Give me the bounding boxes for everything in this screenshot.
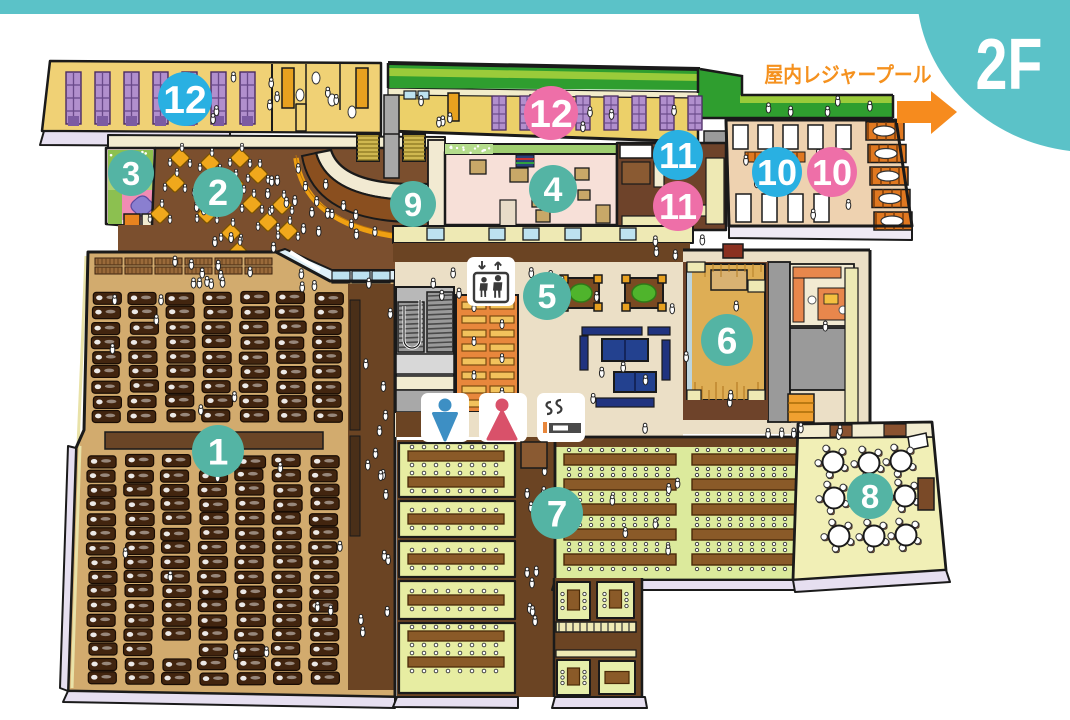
svg-text:屋内レジャープール: 屋内レジャープール [765, 63, 932, 87]
svg-text:6: 6 [717, 320, 738, 361]
svg-text:4: 4 [544, 171, 563, 209]
svg-text:2: 2 [208, 172, 228, 213]
svg-text:11: 11 [659, 186, 697, 227]
svg-text:5: 5 [538, 278, 557, 316]
svg-text:8: 8 [861, 478, 879, 515]
svg-text:12: 12 [529, 93, 572, 136]
svg-text:10: 10 [812, 152, 852, 193]
svg-text:11: 11 [659, 135, 697, 176]
svg-text:1: 1 [208, 431, 229, 472]
svg-text:9: 9 [404, 186, 422, 223]
svg-text:7: 7 [547, 493, 568, 534]
svg-text:10: 10 [757, 152, 797, 193]
svg-text:3: 3 [122, 155, 140, 192]
svg-text:2F: 2F [976, 25, 1043, 105]
svg-text:12: 12 [163, 79, 206, 122]
